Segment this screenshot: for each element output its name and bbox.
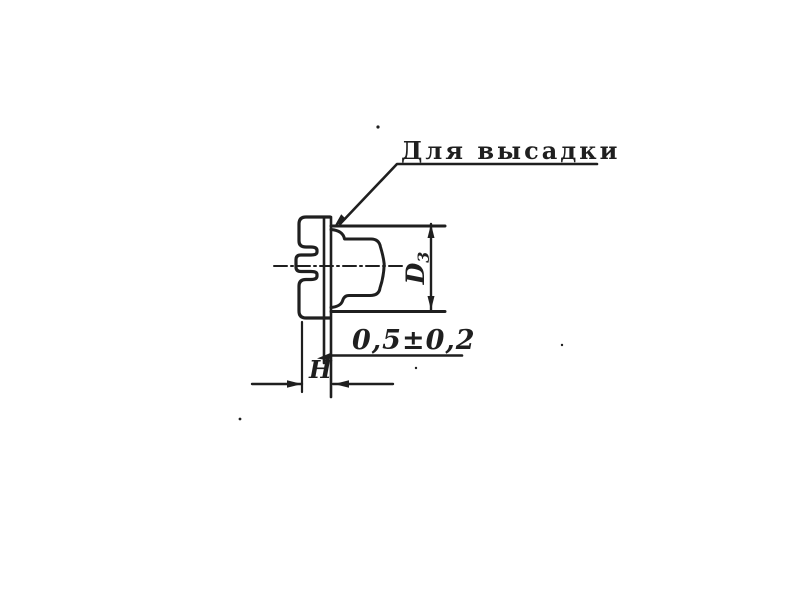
height-arrowhead-left-icon: [334, 380, 349, 387]
speck: [239, 418, 242, 421]
speck: [415, 367, 417, 369]
diameter-dimension-group: D3: [401, 224, 435, 310]
speck: [561, 344, 563, 346]
speck: [376, 125, 379, 128]
diameter-label-rotated: D3: [401, 252, 433, 286]
flange-dimension-value: 0,5±0,2: [352, 325, 476, 356]
callout-group: Для высадки: [334, 136, 620, 227]
flange-dimension-group: 0,5±0,2: [317, 325, 476, 361]
leader-line: [340, 164, 597, 224]
dimension-arrowhead-down-icon: [428, 296, 435, 310]
scanned-drawing-page: Для высадки D3: [0, 0, 800, 600]
technical-drawing: Для высадки D3: [0, 0, 800, 600]
tube-bore-profile-path: [331, 230, 384, 308]
callout-label: Для высадки: [401, 136, 620, 165]
height-dimension-label: H: [308, 355, 333, 384]
height-arrowhead-right-icon: [287, 380, 302, 387]
diameter-label: D3: [401, 252, 433, 286]
